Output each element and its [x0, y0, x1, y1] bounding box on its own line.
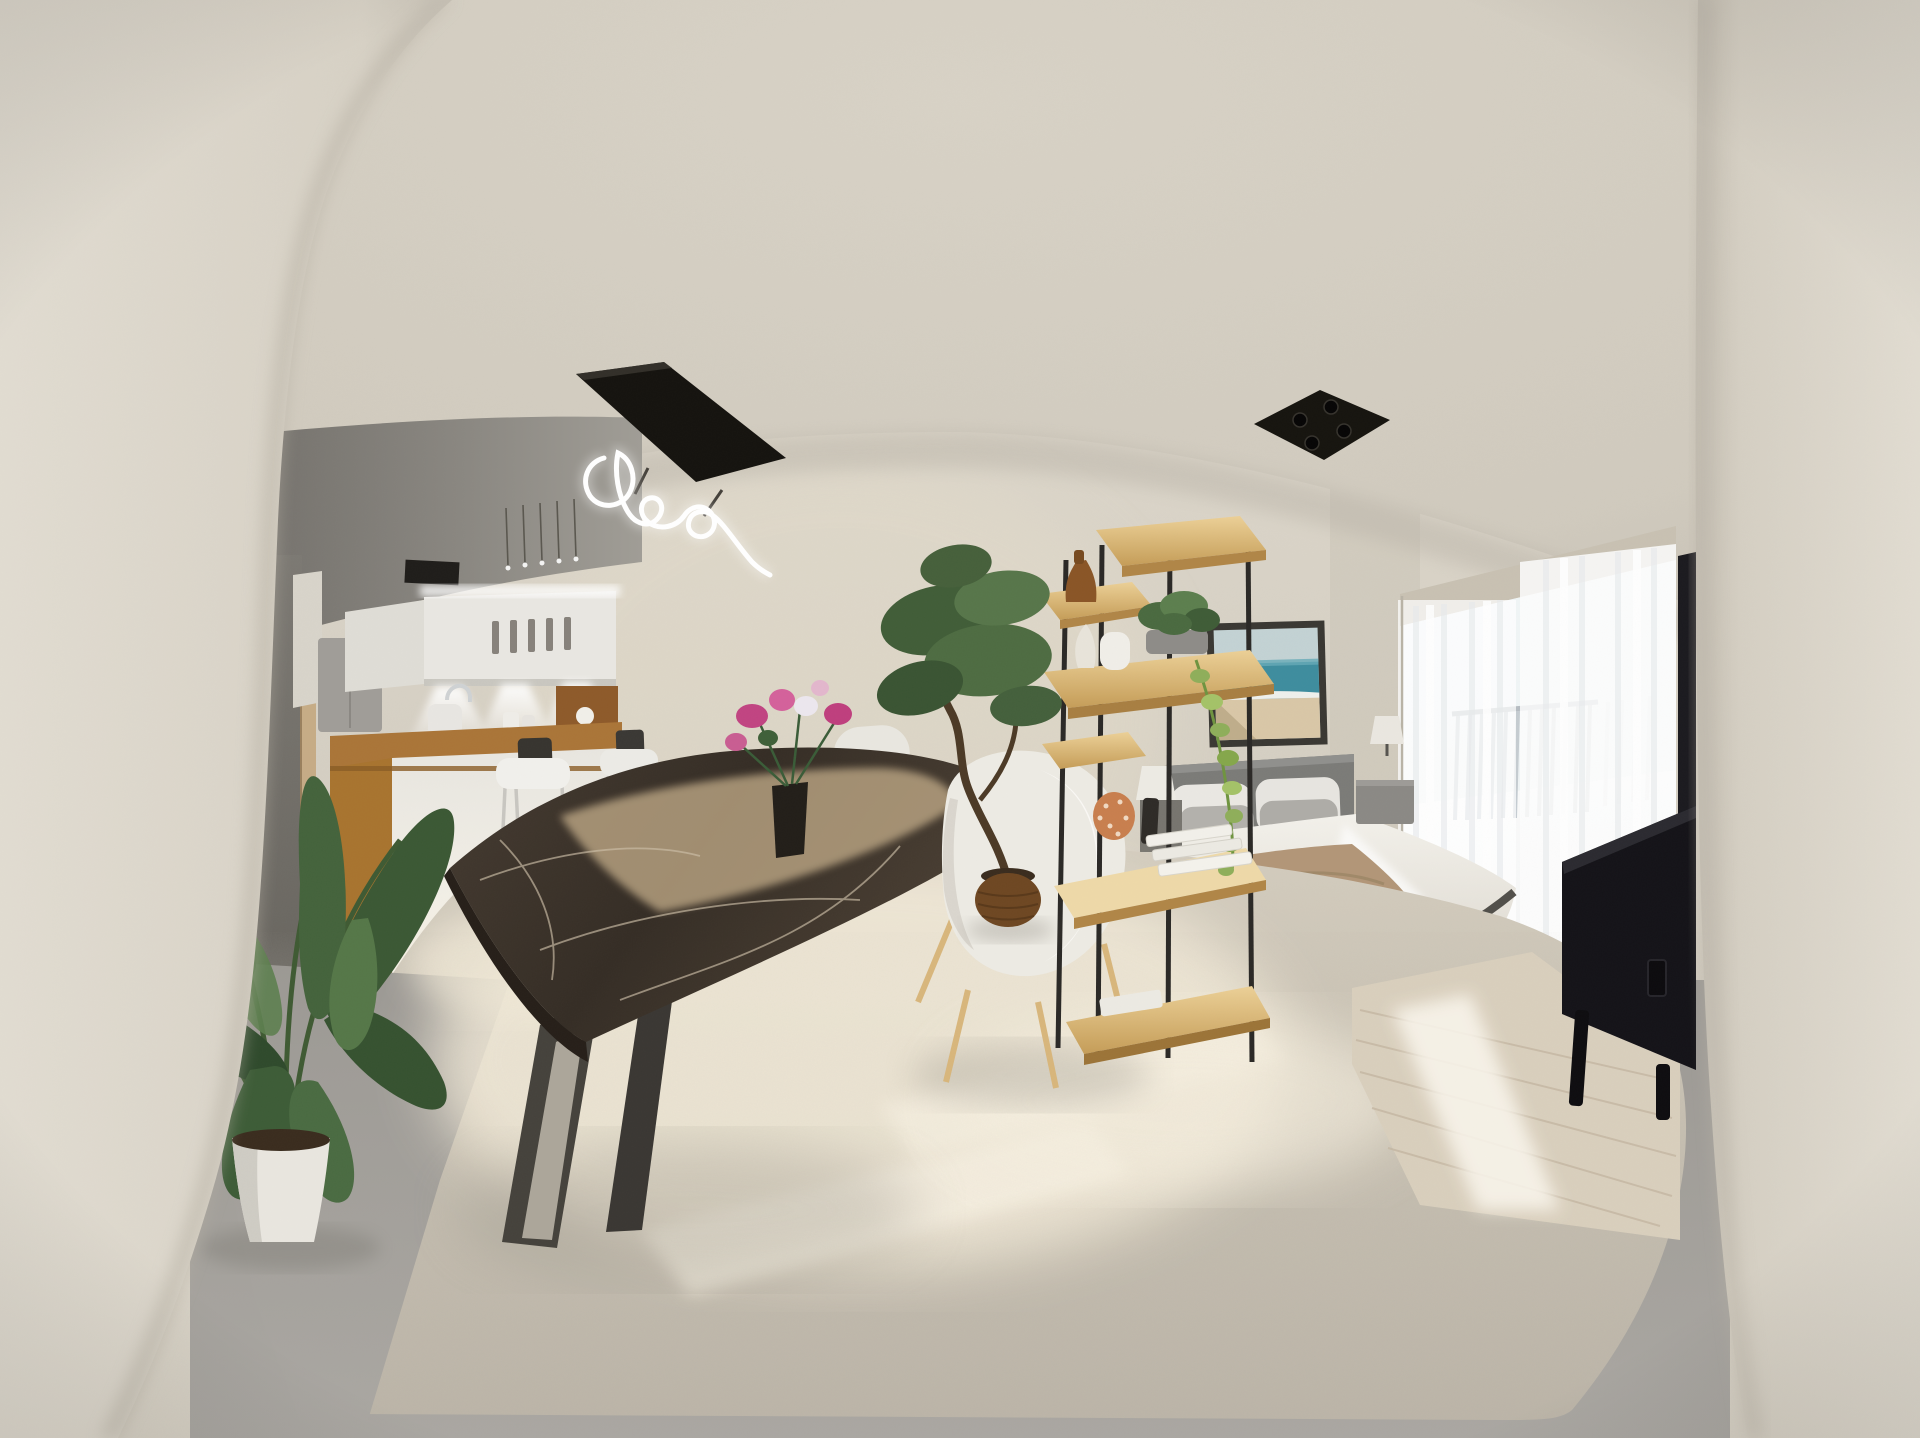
panorama-scene [0, 0, 1920, 1438]
panorama-screenshot [0, 0, 1920, 1438]
vignette [0, 0, 1920, 1438]
